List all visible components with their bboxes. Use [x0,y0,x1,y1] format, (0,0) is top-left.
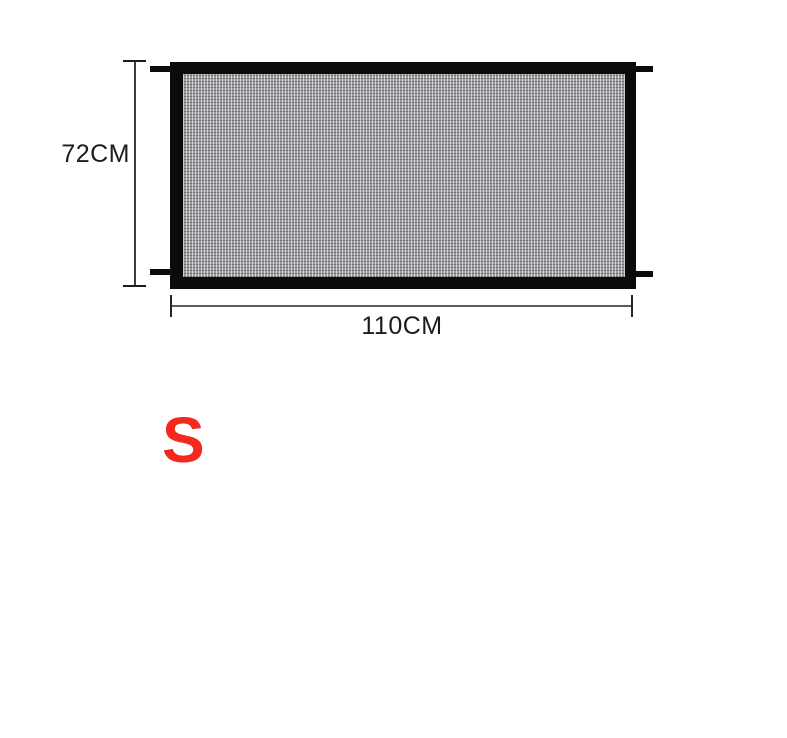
strap-tab-top-left [150,66,174,72]
height-dimension-cap-top [123,60,146,62]
height-dimension-line [134,60,136,287]
product-image: 72CM 110CM S [0,0,787,738]
strap-tab-bottom-left [150,269,174,275]
width-dimension-label: 110CM [302,312,502,341]
height-dimension-label: 72CM [58,140,130,169]
strap-tab-top-right [632,66,653,72]
gate-frame [170,62,636,289]
strap-tab-bottom-right [632,271,653,277]
size-indicator: S [162,408,205,472]
width-dimension-tick-left [170,295,172,317]
width-dimension-line [171,305,632,307]
width-dimension-tick-right [631,295,633,317]
height-dimension-cap-bottom [123,285,146,287]
gate-mesh-panel [183,74,625,277]
